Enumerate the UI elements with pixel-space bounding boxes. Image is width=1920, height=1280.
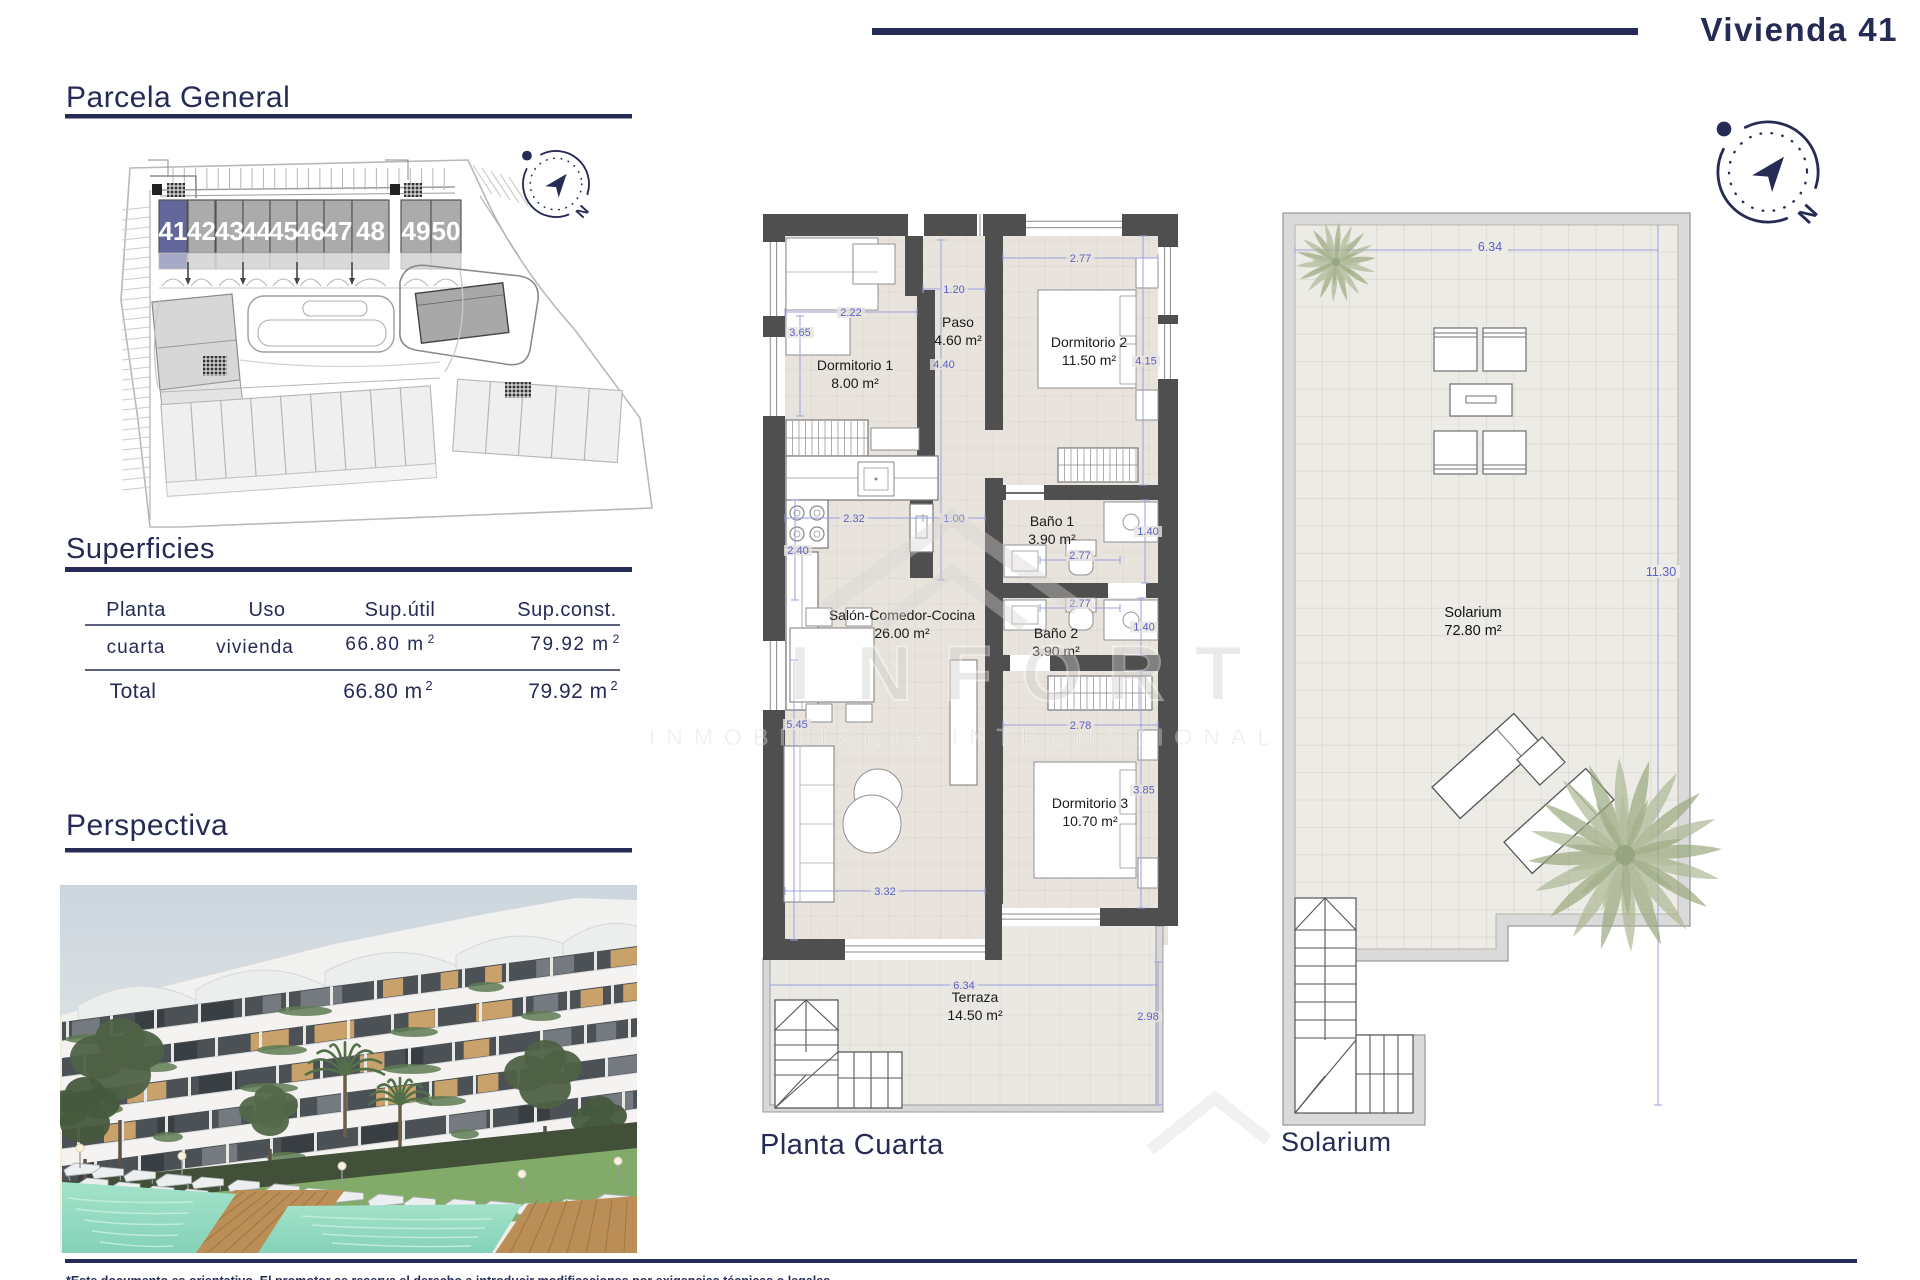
svg-text:4.40: 4.40 xyxy=(933,359,954,371)
svg-text:2: 2 xyxy=(610,678,617,693)
svg-text:N: N xyxy=(856,629,912,717)
svg-text:F: F xyxy=(944,629,992,717)
svg-text:Terraza: Terraza xyxy=(952,989,999,1005)
svg-text:42: 42 xyxy=(187,216,216,246)
svg-text:2.40: 2.40 xyxy=(787,545,808,557)
svg-text:Vivienda 41: Vivienda 41 xyxy=(1700,11,1898,48)
svg-text:43: 43 xyxy=(215,216,244,246)
svg-text:Planta: Planta xyxy=(106,599,166,621)
svg-text:79.92 m: 79.92 m xyxy=(530,634,609,655)
svg-text:49: 49 xyxy=(402,216,431,246)
svg-text:1.40: 1.40 xyxy=(1137,526,1158,538)
svg-text:Uso: Uso xyxy=(248,599,285,621)
svg-text:2: 2 xyxy=(425,678,432,693)
svg-text:2: 2 xyxy=(428,632,435,646)
svg-text:44: 44 xyxy=(242,216,271,246)
svg-text:Planta Cuarta: Planta Cuarta xyxy=(760,1129,944,1161)
svg-text:3.85: 3.85 xyxy=(1133,785,1154,797)
svg-text:2.32: 2.32 xyxy=(843,513,864,525)
svg-text:3.32: 3.32 xyxy=(874,886,895,898)
svg-text:11.30: 11.30 xyxy=(1646,565,1676,579)
svg-text:10.70 m²: 10.70 m² xyxy=(1062,813,1118,829)
svg-text:2.77: 2.77 xyxy=(1070,253,1091,265)
svg-text:Paso: Paso xyxy=(942,314,974,330)
svg-text:48: 48 xyxy=(356,216,385,246)
svg-text:2.77: 2.77 xyxy=(1069,550,1090,562)
svg-text:8.00 m²: 8.00 m² xyxy=(831,375,879,391)
svg-text:Superficies: Superficies xyxy=(66,533,215,565)
svg-text:T: T xyxy=(1194,629,1242,717)
svg-text:cuarta: cuarta xyxy=(107,637,166,658)
svg-text:11.50 m²: 11.50 m² xyxy=(1062,352,1117,368)
svg-text:Sup.útil: Sup.útil xyxy=(365,599,436,621)
svg-text:2.98: 2.98 xyxy=(1137,1011,1158,1023)
svg-text:41: 41 xyxy=(159,216,188,246)
svg-text:Dormitorio 3: Dormitorio 3 xyxy=(1052,795,1128,811)
svg-text:2: 2 xyxy=(613,632,620,646)
svg-text:Dormitorio 1: Dormitorio 1 xyxy=(817,357,893,373)
svg-text:Sup.const.: Sup.const. xyxy=(517,599,617,621)
svg-text:Dormitorio 2: Dormitorio 2 xyxy=(1051,334,1127,350)
svg-text:Baño 1: Baño 1 xyxy=(1030,513,1075,529)
svg-text:1.20: 1.20 xyxy=(943,284,964,296)
svg-text:45: 45 xyxy=(269,216,298,246)
svg-text:6.34: 6.34 xyxy=(1478,240,1502,254)
svg-text:3.90 m²: 3.90 m² xyxy=(1028,531,1076,547)
svg-text:72.80 m²: 72.80 m² xyxy=(1444,623,1501,639)
svg-text:I: I xyxy=(789,629,811,717)
svg-text:R: R xyxy=(1108,629,1164,717)
svg-text:66.80 m: 66.80 m xyxy=(343,680,422,703)
svg-text:2.22: 2.22 xyxy=(840,307,861,319)
svg-text:3.65: 3.65 xyxy=(789,327,810,339)
svg-text:INMOBILIARIA INTERNACIONAL: INMOBILIARIA INTERNACIONAL xyxy=(649,724,1281,750)
svg-text:4.15: 4.15 xyxy=(1135,356,1156,368)
svg-text:vivienda: vivienda xyxy=(216,637,294,658)
svg-text:Total: Total xyxy=(110,680,157,703)
svg-text:Perspectiva: Perspectiva xyxy=(66,809,228,842)
svg-text:47: 47 xyxy=(324,216,353,246)
svg-text:Solarium: Solarium xyxy=(1444,605,1501,621)
svg-text:14.50 m²: 14.50 m² xyxy=(947,1007,1003,1023)
svg-text:*Este documento es orientativo: *Este documento es orientativo. El promo… xyxy=(66,1274,834,1280)
svg-text:4.60 m²: 4.60 m² xyxy=(934,332,982,348)
svg-text:79.92 m: 79.92 m xyxy=(528,680,607,703)
svg-text:50: 50 xyxy=(432,216,461,246)
svg-text:Solarium: Solarium xyxy=(1281,1127,1392,1157)
svg-text:46: 46 xyxy=(296,216,325,246)
svg-text:Parcela General: Parcela General xyxy=(66,81,290,114)
svg-text:O: O xyxy=(1022,629,1083,717)
svg-text:66.80 m: 66.80 m xyxy=(345,634,424,655)
